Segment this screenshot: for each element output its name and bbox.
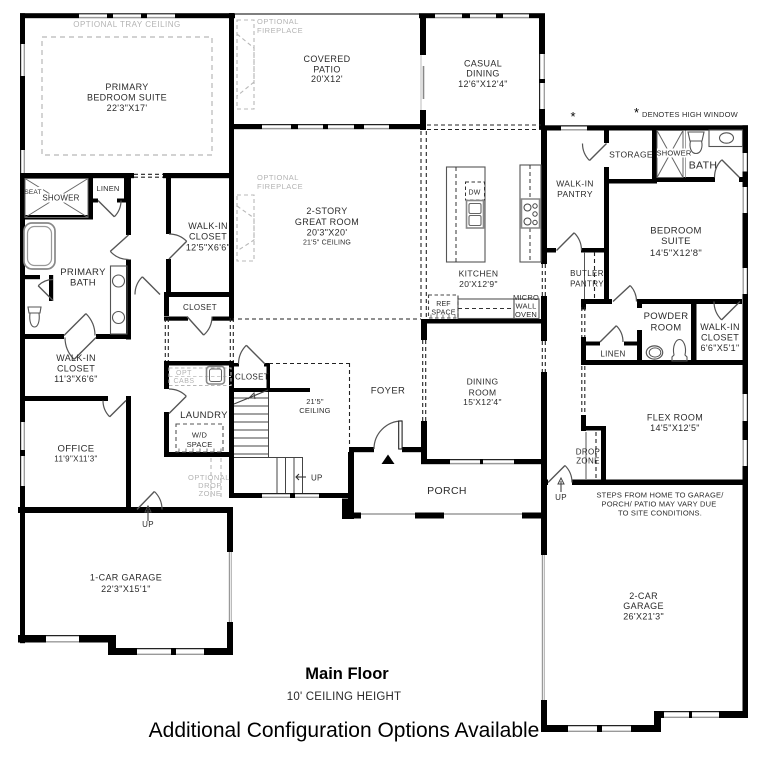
svg-text:UP: UP [142,520,154,529]
svg-text:BEDROOM SUITE: BEDROOM SUITE [87,92,167,102]
svg-text:20'X12': 20'X12' [311,74,343,84]
svg-text:1-CAR GARAGE: 1-CAR GARAGE [90,573,162,583]
svg-text:21'5" CEILING: 21'5" CEILING [303,239,351,246]
svg-text:ZONE: ZONE [576,457,600,466]
svg-text:UP: UP [311,474,323,483]
svg-text:CLOSET: CLOSET [57,364,95,374]
svg-text:REF: REF [436,301,451,308]
svg-text:UP: UP [555,493,567,502]
svg-text:DW: DW [468,190,480,197]
svg-text:22'3"X17': 22'3"X17' [107,103,148,113]
svg-text:SHOWER: SHOWER [657,149,692,158]
svg-text:PRIMARY: PRIMARY [60,267,106,278]
svg-text:PANTRY: PANTRY [557,189,593,199]
svg-text:SHOWER: SHOWER [42,194,79,203]
svg-text:PANTRY: PANTRY [570,279,604,288]
svg-text:ZONE: ZONE [199,489,222,498]
svg-text:SPACE: SPACE [431,310,455,317]
svg-text:DROP: DROP [576,448,601,457]
svg-text:BEDROOM: BEDROOM [650,226,702,237]
svg-text:SUITE: SUITE [661,236,691,247]
svg-text:KITCHEN: KITCHEN [459,269,499,279]
svg-text:SEAT: SEAT [24,189,41,196]
svg-text:POWDER: POWDER [644,311,689,322]
svg-text:OPTIONAL: OPTIONAL [257,17,299,26]
svg-text:2-CAR: 2-CAR [629,591,658,601]
svg-text:14'5"X12'5": 14'5"X12'5" [650,423,700,433]
svg-text:PATIO: PATIO [313,64,340,74]
svg-text:21'5": 21'5" [306,397,324,406]
svg-text:14'5"X12'8": 14'5"X12'8" [650,248,702,259]
svg-text:*: * [570,109,575,124]
svg-text:STORAGE: STORAGE [609,150,653,160]
svg-text:FOYER: FOYER [371,385,405,396]
svg-text:SPACE: SPACE [187,440,213,449]
svg-text:CLOSET: CLOSET [701,332,739,342]
svg-text:OFFICE: OFFICE [58,443,95,454]
svg-text:OVEN: OVEN [515,310,537,319]
svg-text:OPTIONAL: OPTIONAL [257,173,299,182]
svg-text:GARAGE: GARAGE [623,601,664,611]
svg-text:CLOSET: CLOSET [189,232,227,242]
svg-text:DENOTES HIGH WINDOW: DENOTES HIGH WINDOW [642,110,739,119]
svg-text:6'6"X5'1": 6'6"X5'1" [700,343,739,353]
svg-text:CEILING: CEILING [299,406,330,415]
svg-text:FIREPLACE: FIREPLACE [257,26,303,35]
svg-text:CABS: CABS [173,378,194,385]
svg-text:DINING: DINING [466,69,500,79]
svg-text:PORCH/ PATIO MAY VARY DUE: PORCH/ PATIO MAY VARY DUE [602,500,717,509]
svg-text:26'X21'3": 26'X21'3" [623,612,664,622]
svg-text:OPT: OPT [176,370,192,377]
svg-text:CLOSET: CLOSET [183,303,217,312]
svg-text:10' CEILING HEIGHT: 10' CEILING HEIGHT [287,691,401,703]
svg-text:LAUNDRY: LAUNDRY [180,410,228,421]
svg-text:LINEN: LINEN [96,184,119,193]
svg-text:12'6"X12'4": 12'6"X12'4" [458,79,508,89]
svg-text:WALK-IN: WALK-IN [556,179,594,189]
svg-text:2-STORY: 2-STORY [306,206,347,216]
svg-text:COVERED: COVERED [304,54,351,64]
svg-text:WALK-IN: WALK-IN [56,353,96,363]
svg-text:Main Floor: Main Floor [305,665,389,683]
svg-text:TO SITE CONDITIONS.: TO SITE CONDITIONS. [618,509,702,518]
svg-text:W/D: W/D [192,431,208,440]
svg-text:11'3"X6'6": 11'3"X6'6" [54,374,98,384]
svg-text:BATH: BATH [70,277,96,288]
svg-text:STEPS FROM HOME TO GARAGE/: STEPS FROM HOME TO GARAGE/ [596,491,724,500]
svg-text:CASUAL: CASUAL [464,59,502,69]
svg-text:BATH: BATH [689,159,718,171]
svg-text:*: * [634,105,639,120]
svg-text:Additional Configuration Optio: Additional Configuration Options Availab… [149,719,540,742]
svg-text:15'X12'4": 15'X12'4" [463,397,502,407]
svg-text:WALK-IN: WALK-IN [700,322,740,332]
svg-text:PORCH: PORCH [427,485,467,497]
svg-text:ROOM: ROOM [651,323,682,334]
svg-text:20'X12'9": 20'X12'9" [459,279,498,289]
svg-text:20'3"X20': 20'3"X20' [307,227,348,237]
svg-text:FIREPLACE: FIREPLACE [257,182,303,191]
svg-text:22'3"X15'1": 22'3"X15'1" [101,584,151,594]
svg-text:11'9"X11'3": 11'9"X11'3" [54,455,97,464]
svg-text:LINEN: LINEN [600,350,625,359]
svg-text:DINING: DINING [467,376,499,386]
svg-text:PRIMARY: PRIMARY [105,82,148,92]
svg-text:FLEX ROOM: FLEX ROOM [647,413,703,423]
svg-text:WALK-IN: WALK-IN [188,221,228,231]
svg-text:GREAT ROOM: GREAT ROOM [295,217,359,227]
svg-text:BUTLER: BUTLER [570,269,604,278]
svg-text:12'5"X6'6": 12'5"X6'6" [186,242,230,252]
svg-text:OPTIONAL TRAY CEILING: OPTIONAL TRAY CEILING [73,20,181,29]
svg-text:CLOSET: CLOSET [235,373,269,382]
